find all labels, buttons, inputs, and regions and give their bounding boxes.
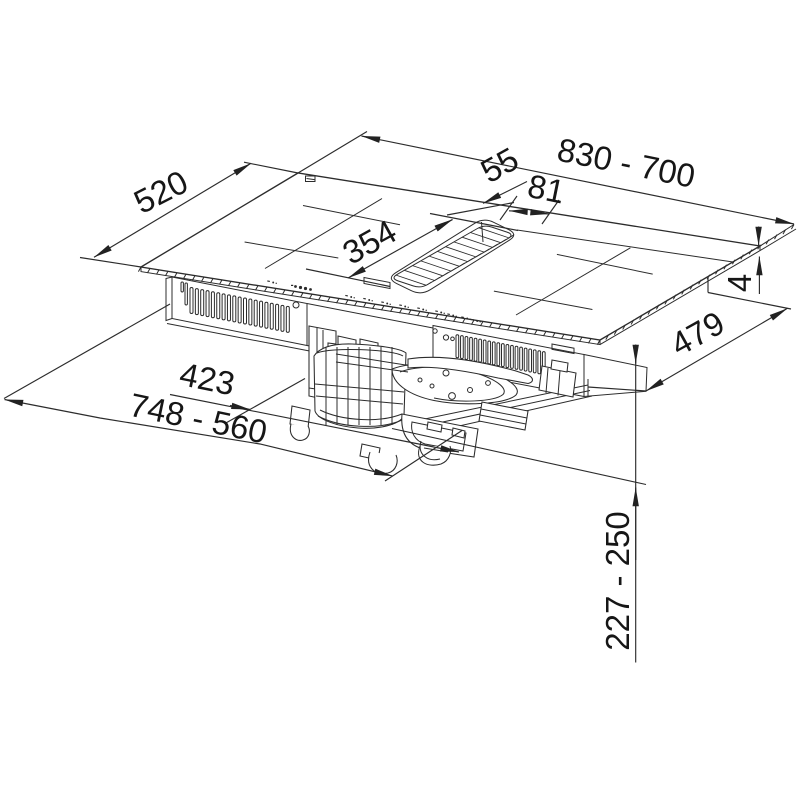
- svg-text:479: 479: [664, 304, 730, 363]
- svg-text:4: 4: [721, 274, 758, 292]
- svg-text:520: 520: [128, 163, 194, 221]
- svg-text:830 - 700: 830 - 700: [554, 131, 698, 195]
- svg-text:227 - 250: 227 - 250: [599, 511, 636, 650]
- svg-text:423: 423: [177, 355, 238, 402]
- svg-text:55: 55: [474, 140, 524, 190]
- svg-text:354: 354: [336, 212, 402, 271]
- svg-text:81: 81: [525, 167, 568, 211]
